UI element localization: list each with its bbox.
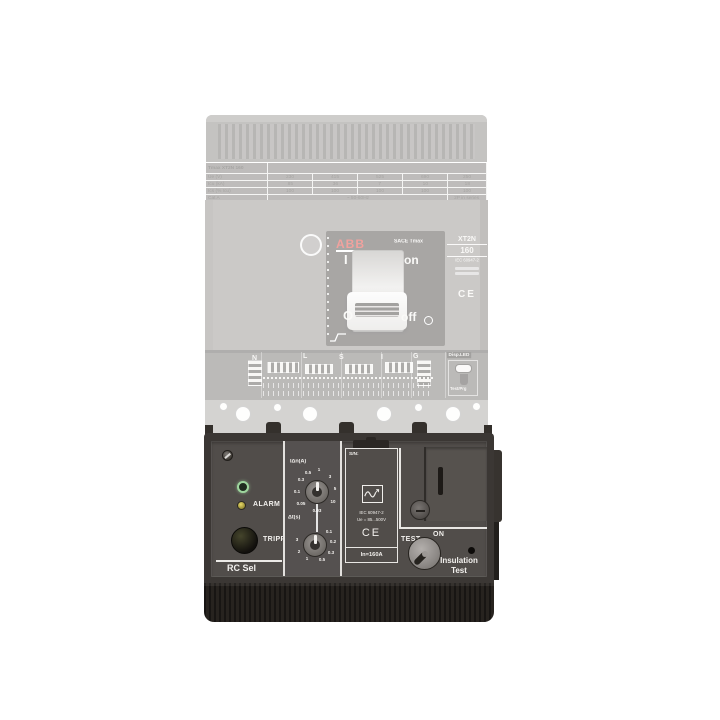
rating-panel: S/N: IEC 60947-2 Ue = 85...500V CE	[345, 448, 398, 548]
trip-curve-icon	[329, 332, 347, 342]
idn-dial-value: 5	[334, 487, 337, 492]
ratings-header-cell	[268, 163, 487, 174]
module-side-shadow	[494, 522, 499, 580]
on-position-symbol: I	[344, 252, 348, 267]
insulation-line2: Test	[428, 566, 490, 576]
l-function-label: L	[303, 353, 307, 360]
mounting-hole	[472, 402, 481, 411]
module-side-tab	[494, 450, 502, 522]
idn-dial-value: 1	[318, 468, 321, 473]
settings-terminal-strip: N L S I G Disp.LED Test/Prg	[205, 350, 488, 400]
mounting-hole	[414, 403, 423, 412]
dt-dial-value: 1	[306, 557, 309, 562]
dip-switch-block	[385, 362, 413, 373]
fine-print-line	[455, 267, 479, 270]
dt-dial-value: 2	[298, 550, 301, 555]
ratings-cell: 10	[403, 181, 448, 188]
ratings-cell: 18	[448, 181, 487, 188]
dt-dial-label: Δt(s)	[288, 515, 300, 520]
series-label: SACE Tmax	[394, 239, 423, 244]
serial-number-label: S/N:	[349, 452, 359, 457]
ratings-cell: 690	[403, 174, 448, 181]
idn-dial-value: 10	[330, 500, 335, 505]
module-standard: IEC 60947-2	[353, 511, 390, 515]
faceplate-tick-marks	[327, 237, 329, 340]
mounting-hole	[235, 406, 251, 422]
standard-label: IEC 60947-2	[453, 258, 481, 264]
dt-dial-value: 3	[296, 538, 299, 543]
ratings-row-label: Ics (% Icu)	[206, 188, 268, 195]
rating-label: 160	[447, 245, 487, 257]
idn-dial-value: 0.5	[305, 471, 311, 476]
module-ribbed-base	[204, 583, 494, 622]
section-divider	[261, 352, 262, 398]
test-reset-button	[424, 316, 433, 325]
setting-dials-strip: IΔn(A) 0.03 0.05 0.1 0.3 0.5 1 3 5 10 Δt…	[283, 441, 342, 576]
idn-dial	[305, 480, 329, 504]
terminal-pad-row	[263, 377, 433, 379]
idn-dial-label: IΔn(A)	[290, 459, 306, 464]
screw-icon	[410, 500, 430, 520]
ratings-label: Tmax XT2N 160 Ue (V) 230 415 525 690 250…	[205, 162, 488, 202]
section-divider	[445, 352, 446, 398]
section-divider	[381, 352, 382, 398]
model-label: XT2N	[447, 235, 487, 245]
module-ce-mark: CE	[346, 527, 397, 539]
idn-dial-value: 0.1	[294, 490, 300, 495]
alarm-label: ALARM	[253, 501, 280, 508]
dt-dial-value: 0.2	[330, 540, 336, 545]
mounting-hole	[219, 402, 228, 411]
indicator-dot	[468, 547, 475, 554]
idn-dial-value: 3	[329, 475, 332, 480]
fine-print-row	[263, 391, 433, 396]
approval-emblem	[300, 234, 322, 256]
display-led-badge: Disp.LED	[447, 352, 471, 358]
test-connector: Test/Prg	[448, 360, 478, 396]
dt-dial-value: 0.3	[328, 551, 334, 556]
section-divider	[411, 352, 412, 398]
dt-dial	[303, 533, 327, 557]
section-divider	[301, 352, 302, 398]
screw-icon	[222, 450, 233, 461]
ratings-cell: 85	[268, 181, 313, 188]
fine-print-row	[263, 383, 433, 388]
mounting-hole	[273, 403, 282, 412]
on-label: ON	[433, 531, 444, 538]
panel-divider-horizontal	[399, 527, 487, 529]
terminal-cover	[206, 115, 487, 162]
fine-print-line	[455, 272, 479, 275]
product-photo: Tmax XT2N 160 Ue (V) 230 415 525 690 250…	[0, 0, 720, 720]
ratings-cell: 100	[403, 188, 448, 195]
mounting-hole	[376, 406, 392, 422]
dt-dial-value: 0.1	[326, 530, 332, 535]
alarm-led	[237, 501, 246, 510]
mounting-hole	[302, 406, 318, 422]
ratings-cell: 415	[313, 174, 358, 181]
terminal-cover-ribs	[218, 124, 475, 159]
rcd-symbol-icon	[362, 485, 383, 503]
ratings-cell: 100	[448, 188, 487, 195]
knob-cap	[422, 551, 428, 557]
in-rating-cell: In=160A	[345, 548, 398, 563]
tripped-button	[231, 527, 258, 554]
dial-connector-line	[316, 504, 318, 532]
ratings-cell: 7	[358, 181, 403, 188]
cover-slot	[438, 467, 443, 495]
idn-dial-value: 0.05	[297, 502, 306, 507]
ratings-cell: 100	[358, 188, 403, 195]
module-name: RC Sel	[227, 563, 256, 573]
ratings-cell: 100	[313, 188, 358, 195]
ratings-cell: 230	[268, 174, 313, 181]
dip-switch-block	[345, 364, 373, 374]
insulation-line1: Insulation	[428, 556, 490, 566]
panel-divider-vertical	[399, 448, 401, 527]
ratings-cell: 250	[448, 174, 487, 181]
ratings-cell: 100	[268, 188, 313, 195]
power-led	[237, 481, 249, 493]
off-label: off	[401, 310, 416, 324]
test-prg-label: Test/Prg	[450, 387, 466, 391]
module-voltage: Ue = 85...500V	[353, 518, 390, 522]
dip-switch-block	[248, 360, 262, 386]
handle-grip	[355, 303, 399, 317]
ratings-title: Tmax XT2N 160	[206, 163, 268, 174]
terminal-cover-lip	[206, 115, 487, 122]
test-connector-stem	[460, 374, 468, 385]
ratings-cell: 525	[358, 174, 403, 181]
ce-mark: CE	[447, 289, 487, 300]
mounting-hole	[445, 406, 461, 422]
ratings-cell: 36	[313, 181, 358, 188]
ratings-row-label: Icu (kA)	[206, 181, 268, 188]
panel-divider-line	[216, 560, 282, 562]
on-label: on	[404, 253, 419, 267]
section-divider	[341, 352, 342, 398]
toggle-handle	[347, 292, 407, 330]
dt-dial-value: 0.5	[319, 558, 325, 563]
idn-dial-value: 0.3	[298, 478, 304, 483]
g-function-label: G	[413, 353, 418, 360]
abb-logo: ABB	[336, 237, 365, 251]
faceplate-side-label: XT2N 160 IEC 60947-2 CE	[447, 235, 487, 300]
off-position-symbol: O	[343, 308, 353, 323]
dip-switch-block	[267, 362, 299, 373]
in-rating: In=160A	[360, 552, 382, 558]
insulation-test-label: Insulation Test	[428, 556, 490, 575]
ratings-row-label: Ue (V)	[206, 174, 268, 181]
sliding-cover	[424, 447, 487, 521]
dip-switch-block	[305, 364, 333, 374]
test-connector-port	[455, 364, 472, 373]
